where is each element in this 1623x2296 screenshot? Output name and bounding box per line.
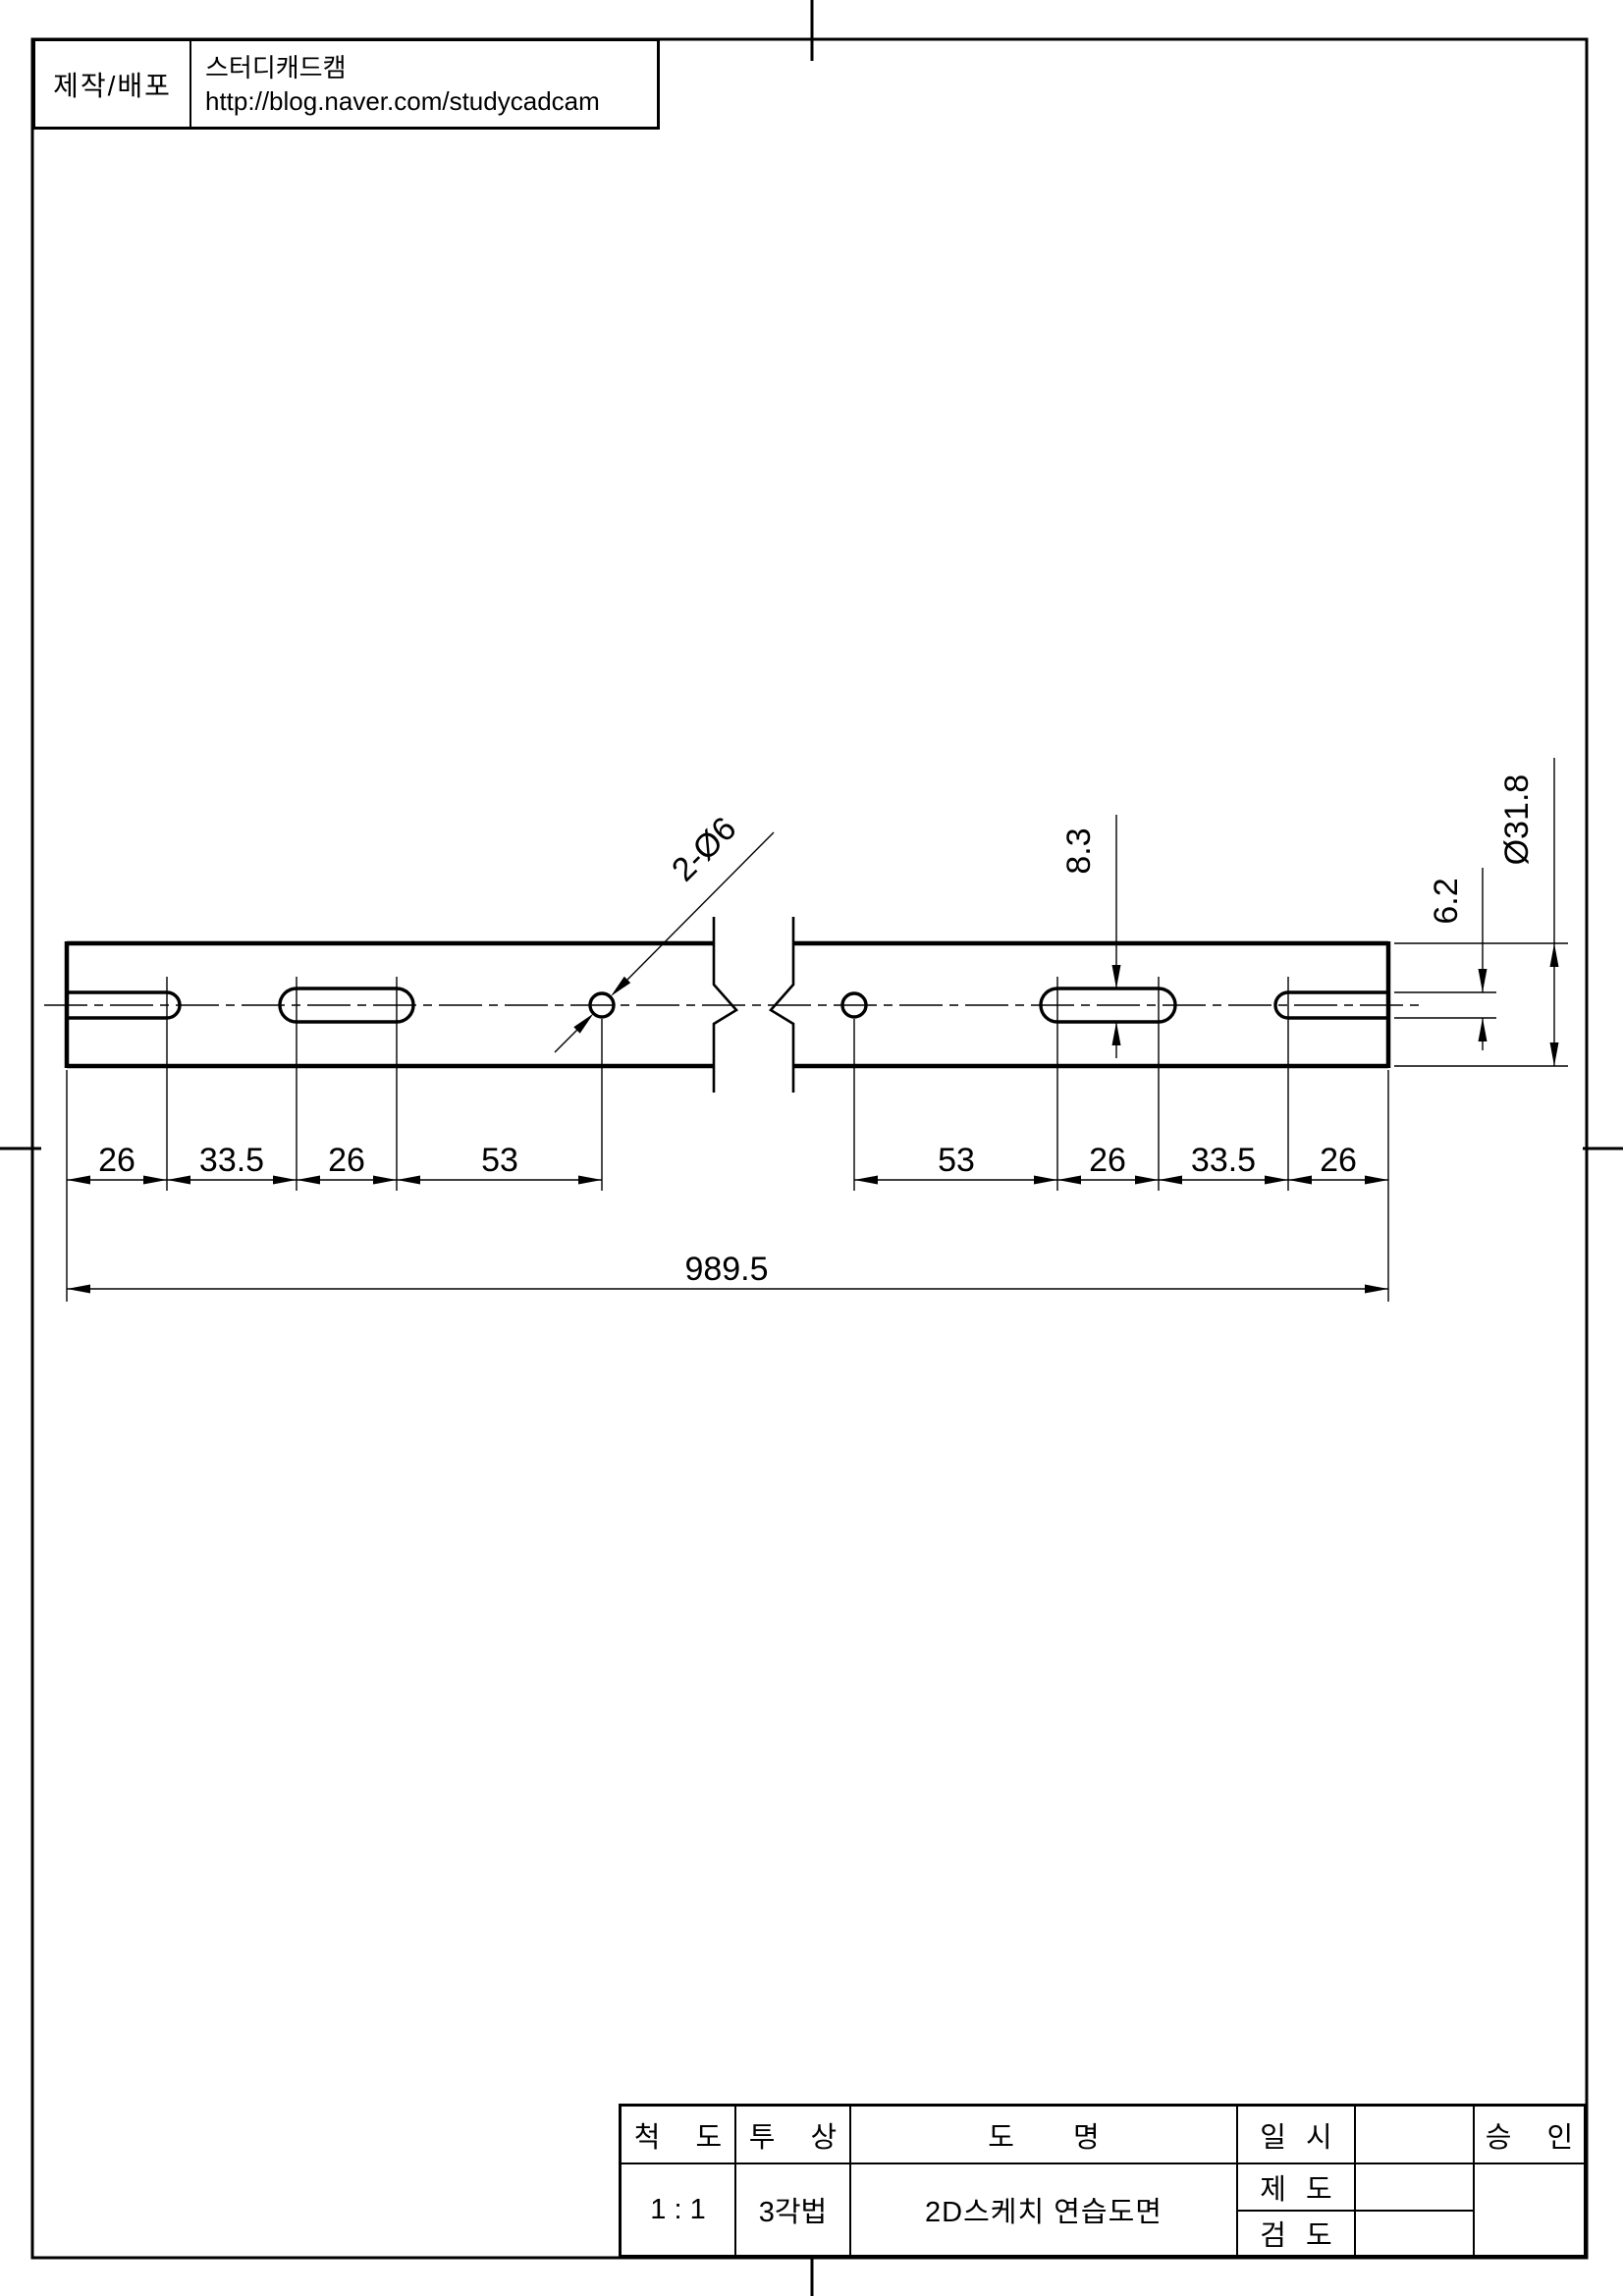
cad-sheet-svg: 26 33.5 26 53 53 26 33.5 26 989.5 8.3 6.… xyxy=(0,0,1623,2296)
drawing-name-value: 2D스케치 연습도면 xyxy=(849,2163,1236,2255)
draft-header: 제 도 xyxy=(1236,2163,1354,2210)
dim-seg-left-2: 26 xyxy=(328,1142,365,1179)
dimension-texts: 26 33.5 26 53 53 26 33.5 26 989.5 8.3 6.… xyxy=(98,774,1536,1288)
publisher-block: 제작/배포 스터디캐드캠 http://blog.naver.com/study… xyxy=(32,38,660,130)
date-header: 일 시 xyxy=(1236,2107,1354,2163)
check-header: 검 도 xyxy=(1236,2210,1354,2255)
extension-lines xyxy=(67,943,1568,1302)
scale-header: 척 도 xyxy=(622,2107,734,2163)
dimension-lines xyxy=(67,758,1554,1289)
approve-value-cell xyxy=(1473,2163,1584,2255)
dim-mid-slot-height: 8.3 xyxy=(1060,828,1098,874)
publisher-url: http://blog.naver.com/studycadcam xyxy=(205,84,657,118)
publisher-label: 제작/배포 xyxy=(53,65,172,104)
publisher-info-cell: 스터디캐드캠 http://blog.naver.com/studycadcam xyxy=(191,41,657,127)
dim-seg-left-3: 53 xyxy=(481,1142,518,1179)
dim-end-slot-height: 6.2 xyxy=(1428,878,1465,924)
publisher-label-cell: 제작/배포 xyxy=(35,41,191,127)
dim-seg-right-2: 33.5 xyxy=(1191,1142,1256,1179)
projection-value: 3각법 xyxy=(734,2163,849,2255)
dim-seg-right-0: 53 xyxy=(938,1142,975,1179)
projection-header: 투 상 xyxy=(734,2107,849,2163)
approve-header: 승 인 xyxy=(1473,2107,1584,2163)
dim-overall: 989.5 xyxy=(684,1251,768,1288)
hole-leader-lower xyxy=(555,1030,577,1052)
dim-seg-left-1: 33.5 xyxy=(199,1142,264,1179)
draft-value-cell xyxy=(1354,2163,1473,2210)
dim-hole-callout: 2-Ø6 xyxy=(665,810,743,888)
title-block: 척 도 투 상 도 명 일 시 승 인 1 : 1 3각법 2D스케치 연습도면… xyxy=(619,2104,1587,2258)
dim-seg-right-3: 26 xyxy=(1320,1142,1357,1179)
check-value-cell xyxy=(1354,2210,1473,2255)
scale-value: 1 : 1 xyxy=(622,2163,734,2255)
dim-seg-right-1: 26 xyxy=(1089,1142,1126,1179)
publisher-name: 스터디캐드캠 xyxy=(205,51,657,84)
dim-outer-diameter: Ø31.8 xyxy=(1498,774,1536,866)
drawing-sheet: { "page": { "background": "#ffffff", "li… xyxy=(0,0,1623,2296)
drawing-name-header: 도 명 xyxy=(849,2107,1236,2163)
arrowheads xyxy=(67,943,1559,1294)
dim-seg-left-0: 26 xyxy=(98,1142,135,1179)
date-value-cell xyxy=(1354,2107,1473,2163)
